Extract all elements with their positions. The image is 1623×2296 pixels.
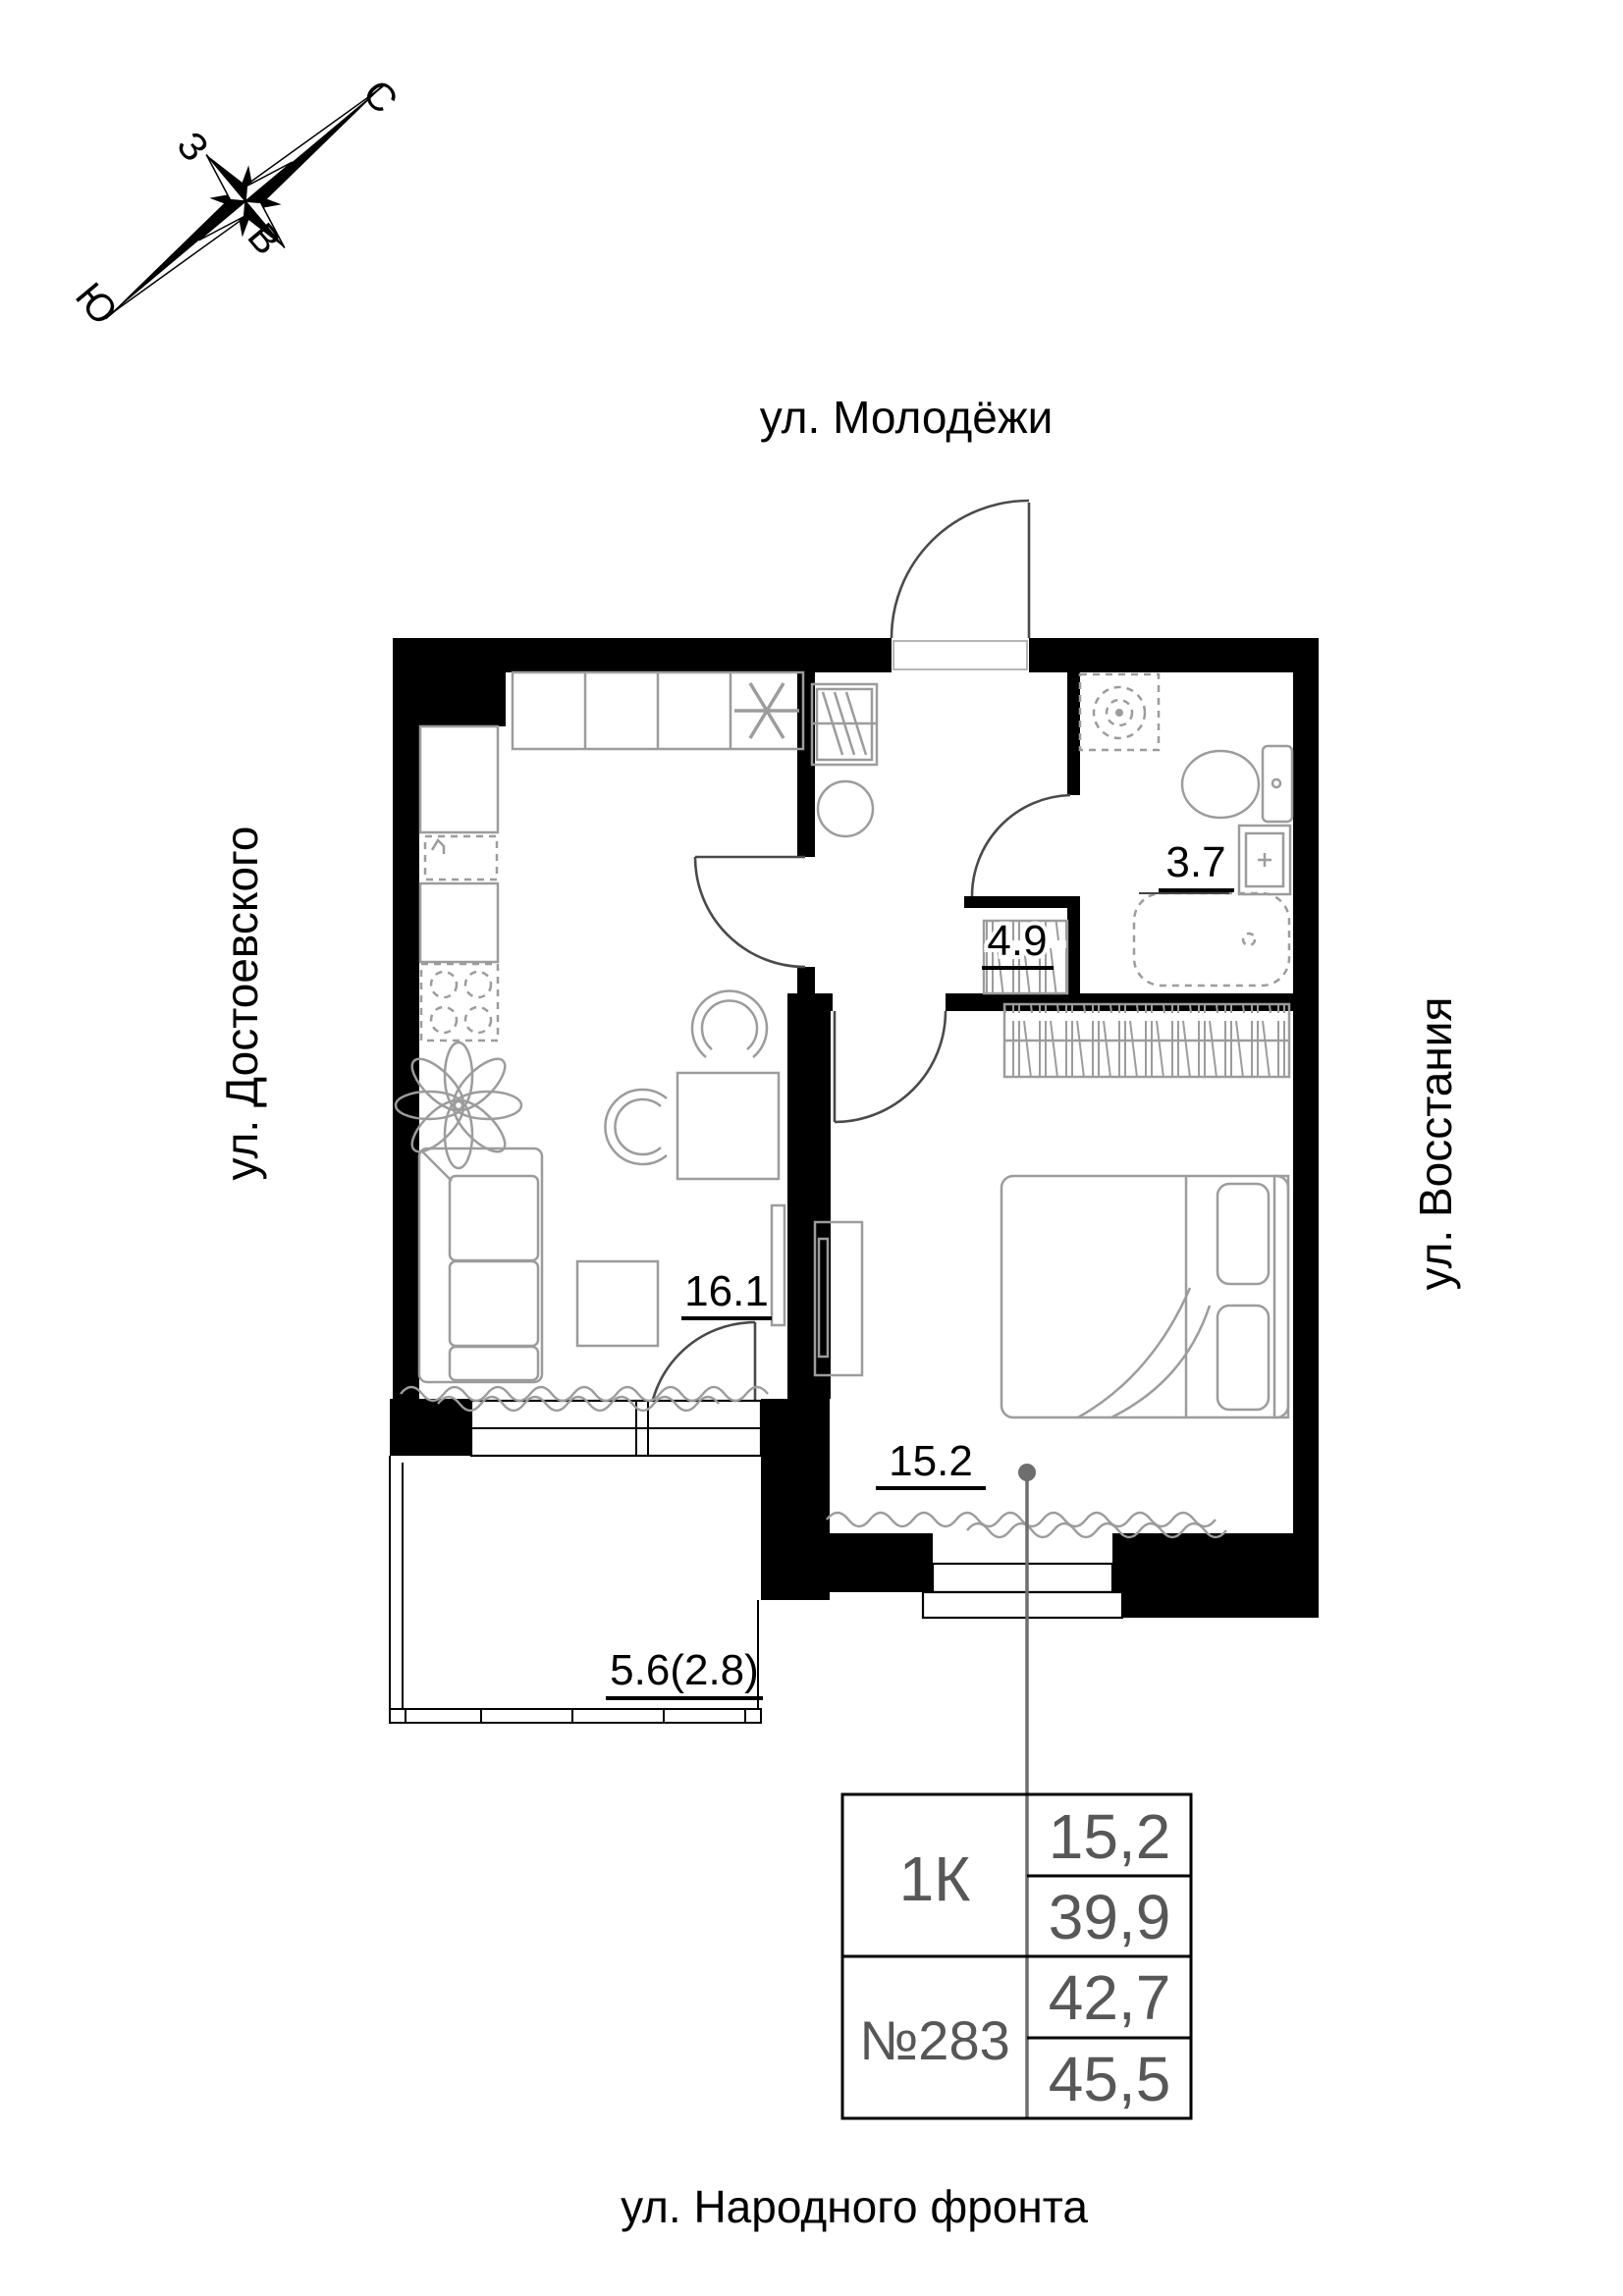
compass-north-label: С — [354, 72, 406, 121]
sink-star-icon — [734, 683, 799, 738]
area-value: 4.9 — [987, 917, 1047, 965]
area-value: 3.7 — [1165, 838, 1225, 886]
bathtub-icon — [1134, 893, 1289, 986]
toilet-icon — [1182, 746, 1292, 822]
apartment-type: 1К — [899, 1843, 971, 1914]
floor-plan-canvas: С З В Ю ул. Молодёжи ул. Достоевского ул… — [0, 0, 1623, 2296]
side-table — [577, 1261, 658, 1346]
info-table: 1К №283 15,2 39,9 42,7 45,5 — [842, 1794, 1191, 2118]
room-label-kitchen-living: 16.1 — [681, 1267, 772, 1318]
room-label-bathroom: 3.7 — [1159, 838, 1234, 890]
room-label-bedroom: 15.2 — [876, 1437, 986, 1488]
entrance-door — [892, 501, 1029, 638]
boiler-icon — [818, 781, 873, 836]
area-without-balcony-value: 39,9 — [1049, 1882, 1171, 1952]
dining-table — [677, 1073, 779, 1179]
area-reduced-balcony-value: 42,7 — [1049, 1962, 1171, 2033]
compass-west-label: З — [168, 124, 216, 170]
kitchen-door — [695, 857, 805, 967]
leader-line — [1018, 1464, 1036, 2118]
room-label-balcony: 5.6(2.8) — [606, 1646, 763, 1698]
apartment-number: №283 — [859, 2009, 1010, 2071]
area-total-value: 45,5 — [1049, 2044, 1171, 2114]
street-label-right: ул. Восстания — [1410, 997, 1461, 1291]
floor-plan-page: С З В Ю ул. Молодёжи ул. Достоевского ул… — [0, 0, 1623, 2296]
bedroom-door — [835, 1011, 946, 1122]
bedroom-closet — [1004, 1004, 1289, 1077]
fridge-hinge-mark — [432, 840, 444, 854]
street-label-left: ул. Достоевского — [216, 827, 267, 1181]
entrance-threshold — [893, 641, 1027, 669]
compass-south-label: Ю — [67, 275, 126, 333]
bathroom-door — [972, 795, 1070, 896]
chair-left — [605, 1090, 667, 1164]
bed — [1001, 1176, 1288, 1417]
area-value: 16.1 — [684, 1267, 769, 1315]
street-label-bottom: ул. Народного фронта — [621, 2181, 1088, 2232]
living-area-value: 15,2 — [1049, 1801, 1171, 1872]
room-label-hallway: 4.9 — [982, 917, 1054, 968]
sofa — [419, 1148, 542, 1382]
area-value: 15.2 — [889, 1437, 973, 1485]
chair-top — [692, 991, 767, 1057]
compass-rose: С З В Ю — [67, 37, 425, 365]
washing-machine-icon — [812, 684, 877, 765]
walls — [390, 638, 1319, 1618]
area-value: 5.6(2.8) — [610, 1646, 759, 1694]
bathroom-sink-icon — [1239, 826, 1290, 894]
kitchen-upper-cabinets — [513, 672, 803, 749]
stove-icon — [421, 964, 498, 1041]
street-label-top: ул. Молодёжи — [760, 392, 1054, 443]
ventilation-icon — [1080, 674, 1159, 750]
tv-living-room — [772, 1205, 784, 1325]
kitchen-counter-column — [420, 726, 498, 1041]
